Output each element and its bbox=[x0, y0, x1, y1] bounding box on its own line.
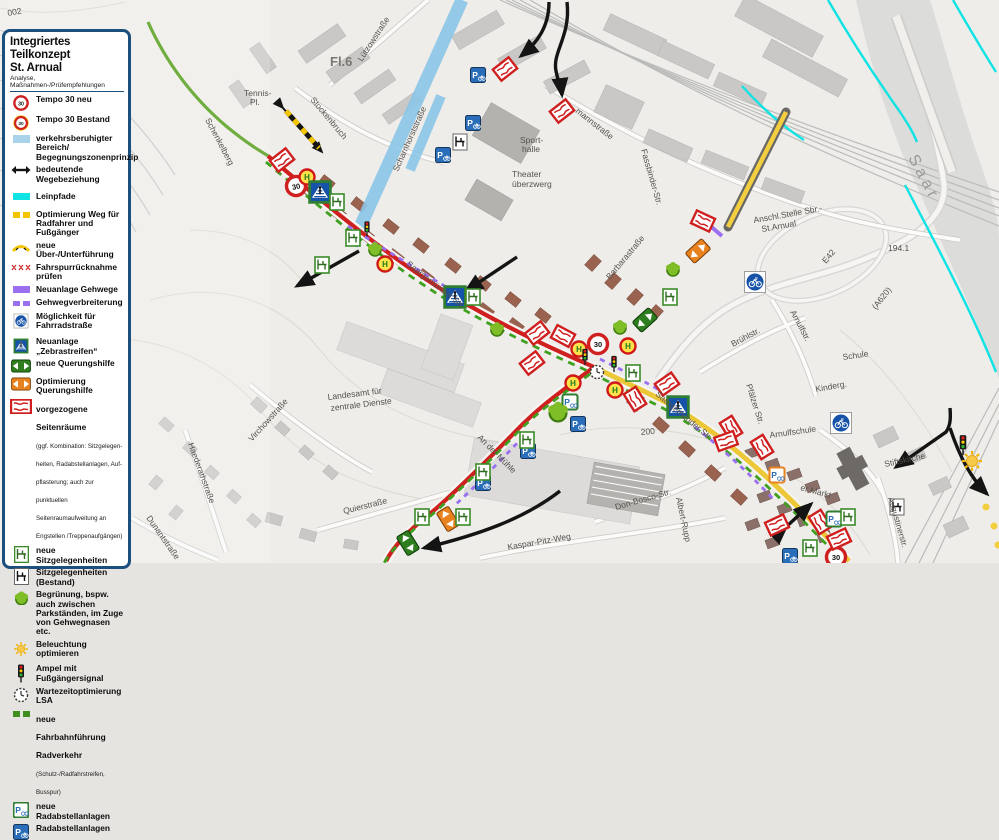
new-bike-parking-icon bbox=[10, 802, 32, 818]
legend-item: Wartezeitoptimierung LSA bbox=[10, 687, 124, 705]
bus-stop-icon bbox=[621, 339, 636, 354]
legend-item: vorgezogene Seitenräume (ggf. Kombinatio… bbox=[10, 399, 124, 543]
zebra-crossing-sign-icon bbox=[310, 182, 331, 203]
new-seating-icon bbox=[10, 546, 32, 563]
legend-item: Beleuchtung optimieren bbox=[10, 640, 124, 658]
bicycle-street-sign-icon bbox=[745, 272, 766, 293]
legend-item: Optimierung Weg für Radfahrer und Fußgän… bbox=[10, 210, 124, 238]
zebra-crossing-sign-icon bbox=[10, 337, 32, 355]
legend-item: neue Fahrbahnführung Radverkehr (Schutz-… bbox=[10, 709, 124, 799]
legend-item: Fahrspurrücknahme prüfen bbox=[10, 263, 124, 281]
bus-stop-icon bbox=[378, 257, 393, 272]
legend-item: Optimierung Querungshilfe bbox=[10, 377, 124, 395]
legend-item: Neuanlage „Zebrastreifen“ bbox=[10, 337, 124, 355]
bicycle-street-sign-icon bbox=[831, 413, 852, 434]
legend-item: neue Querungshilfe bbox=[10, 359, 124, 373]
bicycle-street-sign-icon bbox=[10, 312, 32, 330]
bike-parking-icon bbox=[783, 549, 798, 564]
important-route-arrow-icon bbox=[10, 165, 32, 175]
bike-parking-icon bbox=[10, 824, 32, 840]
legend-item: Tempo 30 neu bbox=[10, 95, 124, 111]
contour-label: 200 bbox=[640, 426, 655, 437]
legend-item: neue Über-/Unterführung bbox=[10, 241, 124, 259]
legend-item: Sitzgelegenheiten (Bestand) bbox=[10, 568, 124, 586]
building-label: Theater bbox=[512, 169, 541, 179]
new-seating-icon bbox=[315, 257, 329, 273]
bike-parking-optimization-icon bbox=[770, 468, 785, 483]
new-bike-lane-swatch bbox=[10, 709, 32, 719]
legend-panel: Integriertes Teilkonzept St. Arnual Anal… bbox=[2, 29, 131, 569]
towpath-swatch bbox=[10, 192, 32, 202]
lane-reduction-icon bbox=[10, 263, 32, 273]
new-bike-parking-icon bbox=[827, 512, 842, 527]
legend-item: Neuanlage Gehwege bbox=[10, 285, 124, 295]
legend-title-2: St. Arnual bbox=[10, 62, 124, 75]
new-seating-icon bbox=[346, 230, 360, 246]
building-label: überzwerg bbox=[512, 179, 552, 189]
advanced-side-space-icon bbox=[10, 399, 32, 414]
bus-stop-icon bbox=[566, 376, 581, 391]
new-seating-icon bbox=[626, 365, 640, 381]
bike-parking-icon bbox=[571, 417, 586, 432]
legend-subtitle: Analyse, Maßnahmen-/Prüfempfehlungen bbox=[10, 75, 124, 92]
new-seating-icon bbox=[663, 289, 677, 305]
legend-item: Ampel mit Fußgängersignal bbox=[10, 664, 124, 683]
new-underpass-icon bbox=[10, 241, 32, 253]
lighting-icon bbox=[962, 451, 982, 471]
legend-item: bedeutende Wegebeziehung bbox=[10, 165, 124, 183]
tempo-30-sign-icon bbox=[827, 548, 846, 564]
tempo-30-sign-icon bbox=[589, 335, 608, 354]
pedestrian-signal-icon bbox=[10, 664, 32, 683]
building-label: halle bbox=[522, 144, 540, 154]
legend-item: neue Radabstellanlagen bbox=[10, 802, 124, 820]
new-seating-icon bbox=[476, 464, 490, 480]
lighting-icon bbox=[10, 640, 32, 658]
new-crossing-aid-icon bbox=[10, 359, 32, 373]
wait-time-optimization-icon bbox=[591, 366, 604, 379]
new-seating-icon bbox=[330, 194, 344, 210]
legend-item: Gehwegverbreiterung bbox=[10, 298, 124, 308]
new-seating-icon bbox=[456, 509, 470, 525]
new-seating-icon bbox=[466, 289, 480, 305]
new-seating-icon bbox=[803, 540, 817, 556]
crossing-aid-optimization-icon bbox=[10, 377, 32, 391]
bike-parking-icon bbox=[436, 148, 451, 163]
new-seating-icon bbox=[415, 509, 429, 525]
plan-map-canvas: 30 H P bbox=[0, 0, 999, 563]
area-label: Fl.6 bbox=[330, 54, 352, 69]
legend-item: Begrünung, bspw. auch zwischen Parkständ… bbox=[10, 590, 124, 636]
new-seating-icon bbox=[520, 432, 534, 448]
wait-time-optimization-icon bbox=[10, 687, 32, 703]
legend-item: Leinpfade bbox=[10, 192, 124, 202]
area-label: Pl. bbox=[250, 97, 260, 107]
bike-parking-icon bbox=[471, 68, 486, 83]
legend-item: Radabstellanlagen bbox=[10, 824, 124, 840]
tempo-30-bestand-icon bbox=[10, 115, 32, 131]
existing-seating-icon bbox=[453, 134, 467, 150]
bike-parking-icon bbox=[466, 116, 481, 131]
legend-item: neue Sitzgelegenheiten bbox=[10, 546, 124, 564]
legend-title: Integriertes Teilkonzept bbox=[10, 36, 124, 62]
traffic-calmed-area-swatch bbox=[10, 134, 32, 144]
path-optimization-swatch bbox=[10, 210, 32, 220]
sidewalk-widening-swatch bbox=[10, 298, 32, 308]
new-seating-icon bbox=[841, 509, 855, 525]
legend-item: Tempo 30 Bestand bbox=[10, 115, 124, 131]
new-sidewalk-swatch bbox=[10, 285, 32, 295]
legend-item: Möglichkeit für Fahrradstraße bbox=[10, 312, 124, 330]
elevation-label: 194.1 bbox=[888, 243, 910, 253]
legend-item: verkehrsberuhigter Bereich/ Begegnungszo… bbox=[10, 134, 124, 162]
existing-seating-icon bbox=[10, 568, 32, 585]
bus-stop-icon bbox=[608, 383, 623, 398]
greening-icon bbox=[10, 590, 32, 605]
tempo-30-neu-icon bbox=[10, 95, 32, 111]
